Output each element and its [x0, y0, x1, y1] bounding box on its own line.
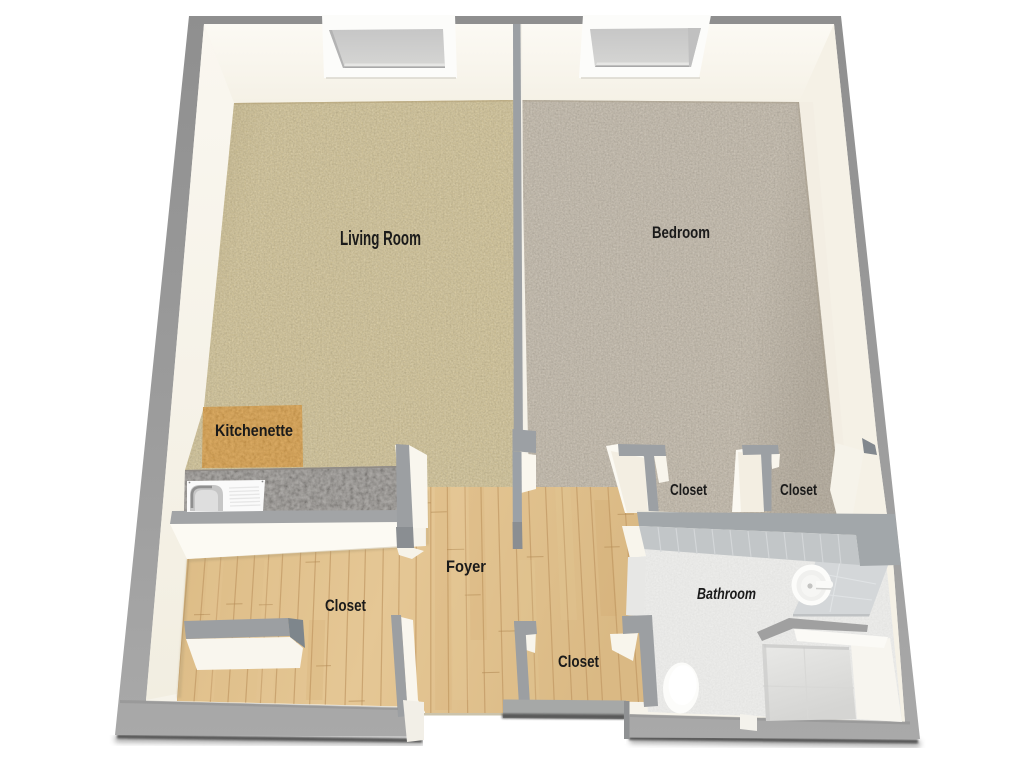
svg-text:Bathroom: Bathroom	[697, 586, 756, 603]
svg-text:Foyer: Foyer	[446, 558, 487, 576]
svg-text:Closet: Closet	[670, 482, 708, 499]
svg-text:Closet: Closet	[558, 653, 599, 671]
svg-text:Kitchenette: Kitchenette	[215, 422, 293, 440]
svg-text:Closet: Closet	[325, 597, 366, 615]
svg-text:Bedroom: Bedroom	[652, 224, 710, 242]
svg-text:Living Room: Living Room	[340, 228, 421, 250]
svg-text:Closet: Closet	[780, 482, 818, 499]
